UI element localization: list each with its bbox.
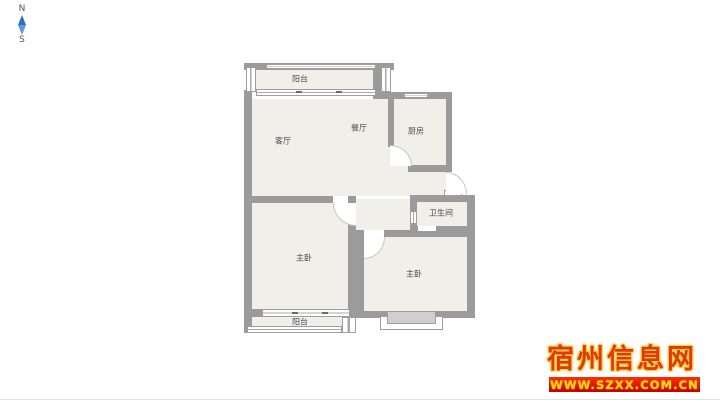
room-label-kitchen: 厨房: [408, 126, 424, 137]
balcony-side-window: [381, 67, 391, 92]
door-tick: [336, 91, 342, 93]
balcony-sliding-door: [256, 89, 376, 96]
balcony-bottom-side-window: [342, 317, 356, 333]
watermark-banner: www.szxx.com.cn: [549, 377, 700, 392]
kitchen-window: [404, 93, 428, 98]
wall: [408, 165, 452, 172]
wall: [388, 99, 394, 147]
door-opening: [364, 230, 384, 237]
balcony-side-window: [246, 67, 256, 92]
hallway-floor: [354, 199, 410, 230]
door-tick: [292, 312, 298, 314]
wall: [244, 196, 333, 203]
bay-window: [387, 311, 436, 324]
watermark-site-name: 宿州信息网: [547, 344, 697, 376]
room-label-bedroom-left: 主卧: [296, 253, 312, 264]
wall: [410, 202, 417, 211]
bottom-divider: [0, 399, 720, 400]
room-label-balcony-bottom: 阳台: [292, 317, 308, 328]
entry-door-arc: [446, 172, 467, 194]
wall: [467, 195, 475, 318]
door-tick: [296, 91, 302, 93]
door-opening: [333, 196, 348, 203]
wall: [356, 230, 364, 318]
bathroom-door: [410, 211, 417, 224]
bathroom-threshold: [418, 226, 436, 232]
wall: [410, 195, 475, 202]
door-tick: [322, 312, 328, 314]
room-label-bedroom-right: 主卧: [406, 269, 422, 280]
room-label-living-room: 客厅: [275, 136, 291, 147]
room-label-balcony-top: 阳台: [292, 74, 308, 85]
balcony-top-window: [266, 64, 376, 69]
balcony-top-floor: [251, 70, 374, 91]
room-label-dining-room: 餐厅: [351, 123, 367, 134]
wall: [244, 90, 252, 333]
wall: [446, 92, 452, 172]
watermark-site-url: www.szxx.com.cn: [550, 378, 699, 392]
room-label-bathroom: 卫生间: [429, 208, 453, 219]
floorplan-page: N S: [0, 0, 720, 405]
